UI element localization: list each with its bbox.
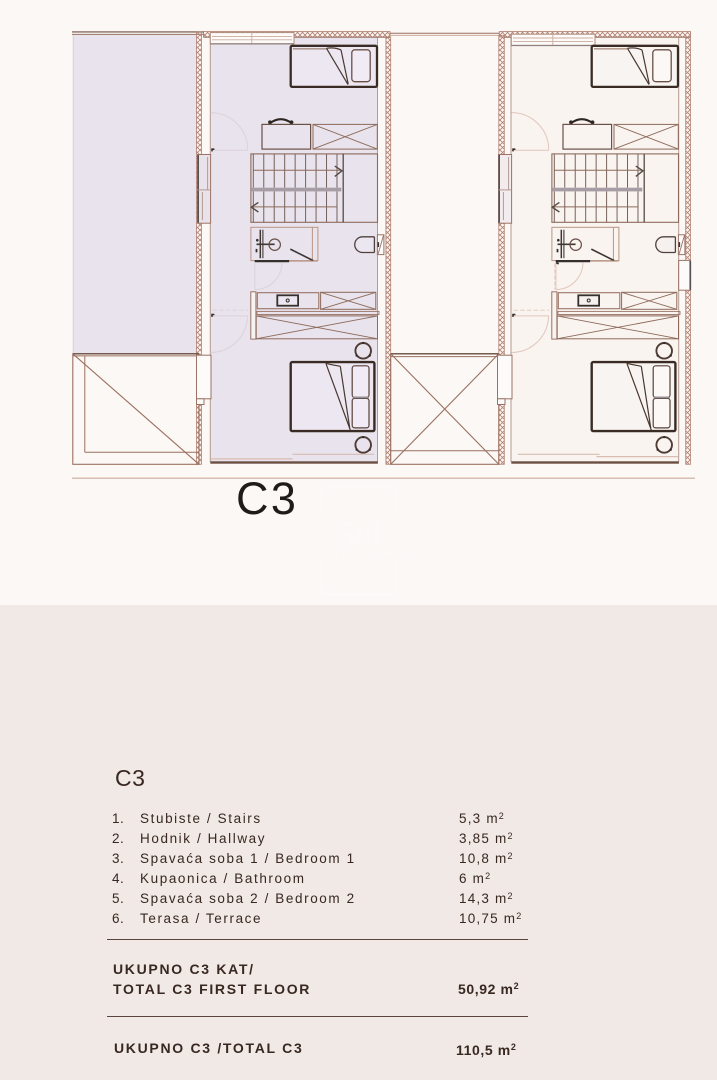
svg-text:Sal: Sal: [333, 510, 384, 556]
svg-text:NEKRETNINE: NEKRETNINE: [333, 551, 421, 558]
